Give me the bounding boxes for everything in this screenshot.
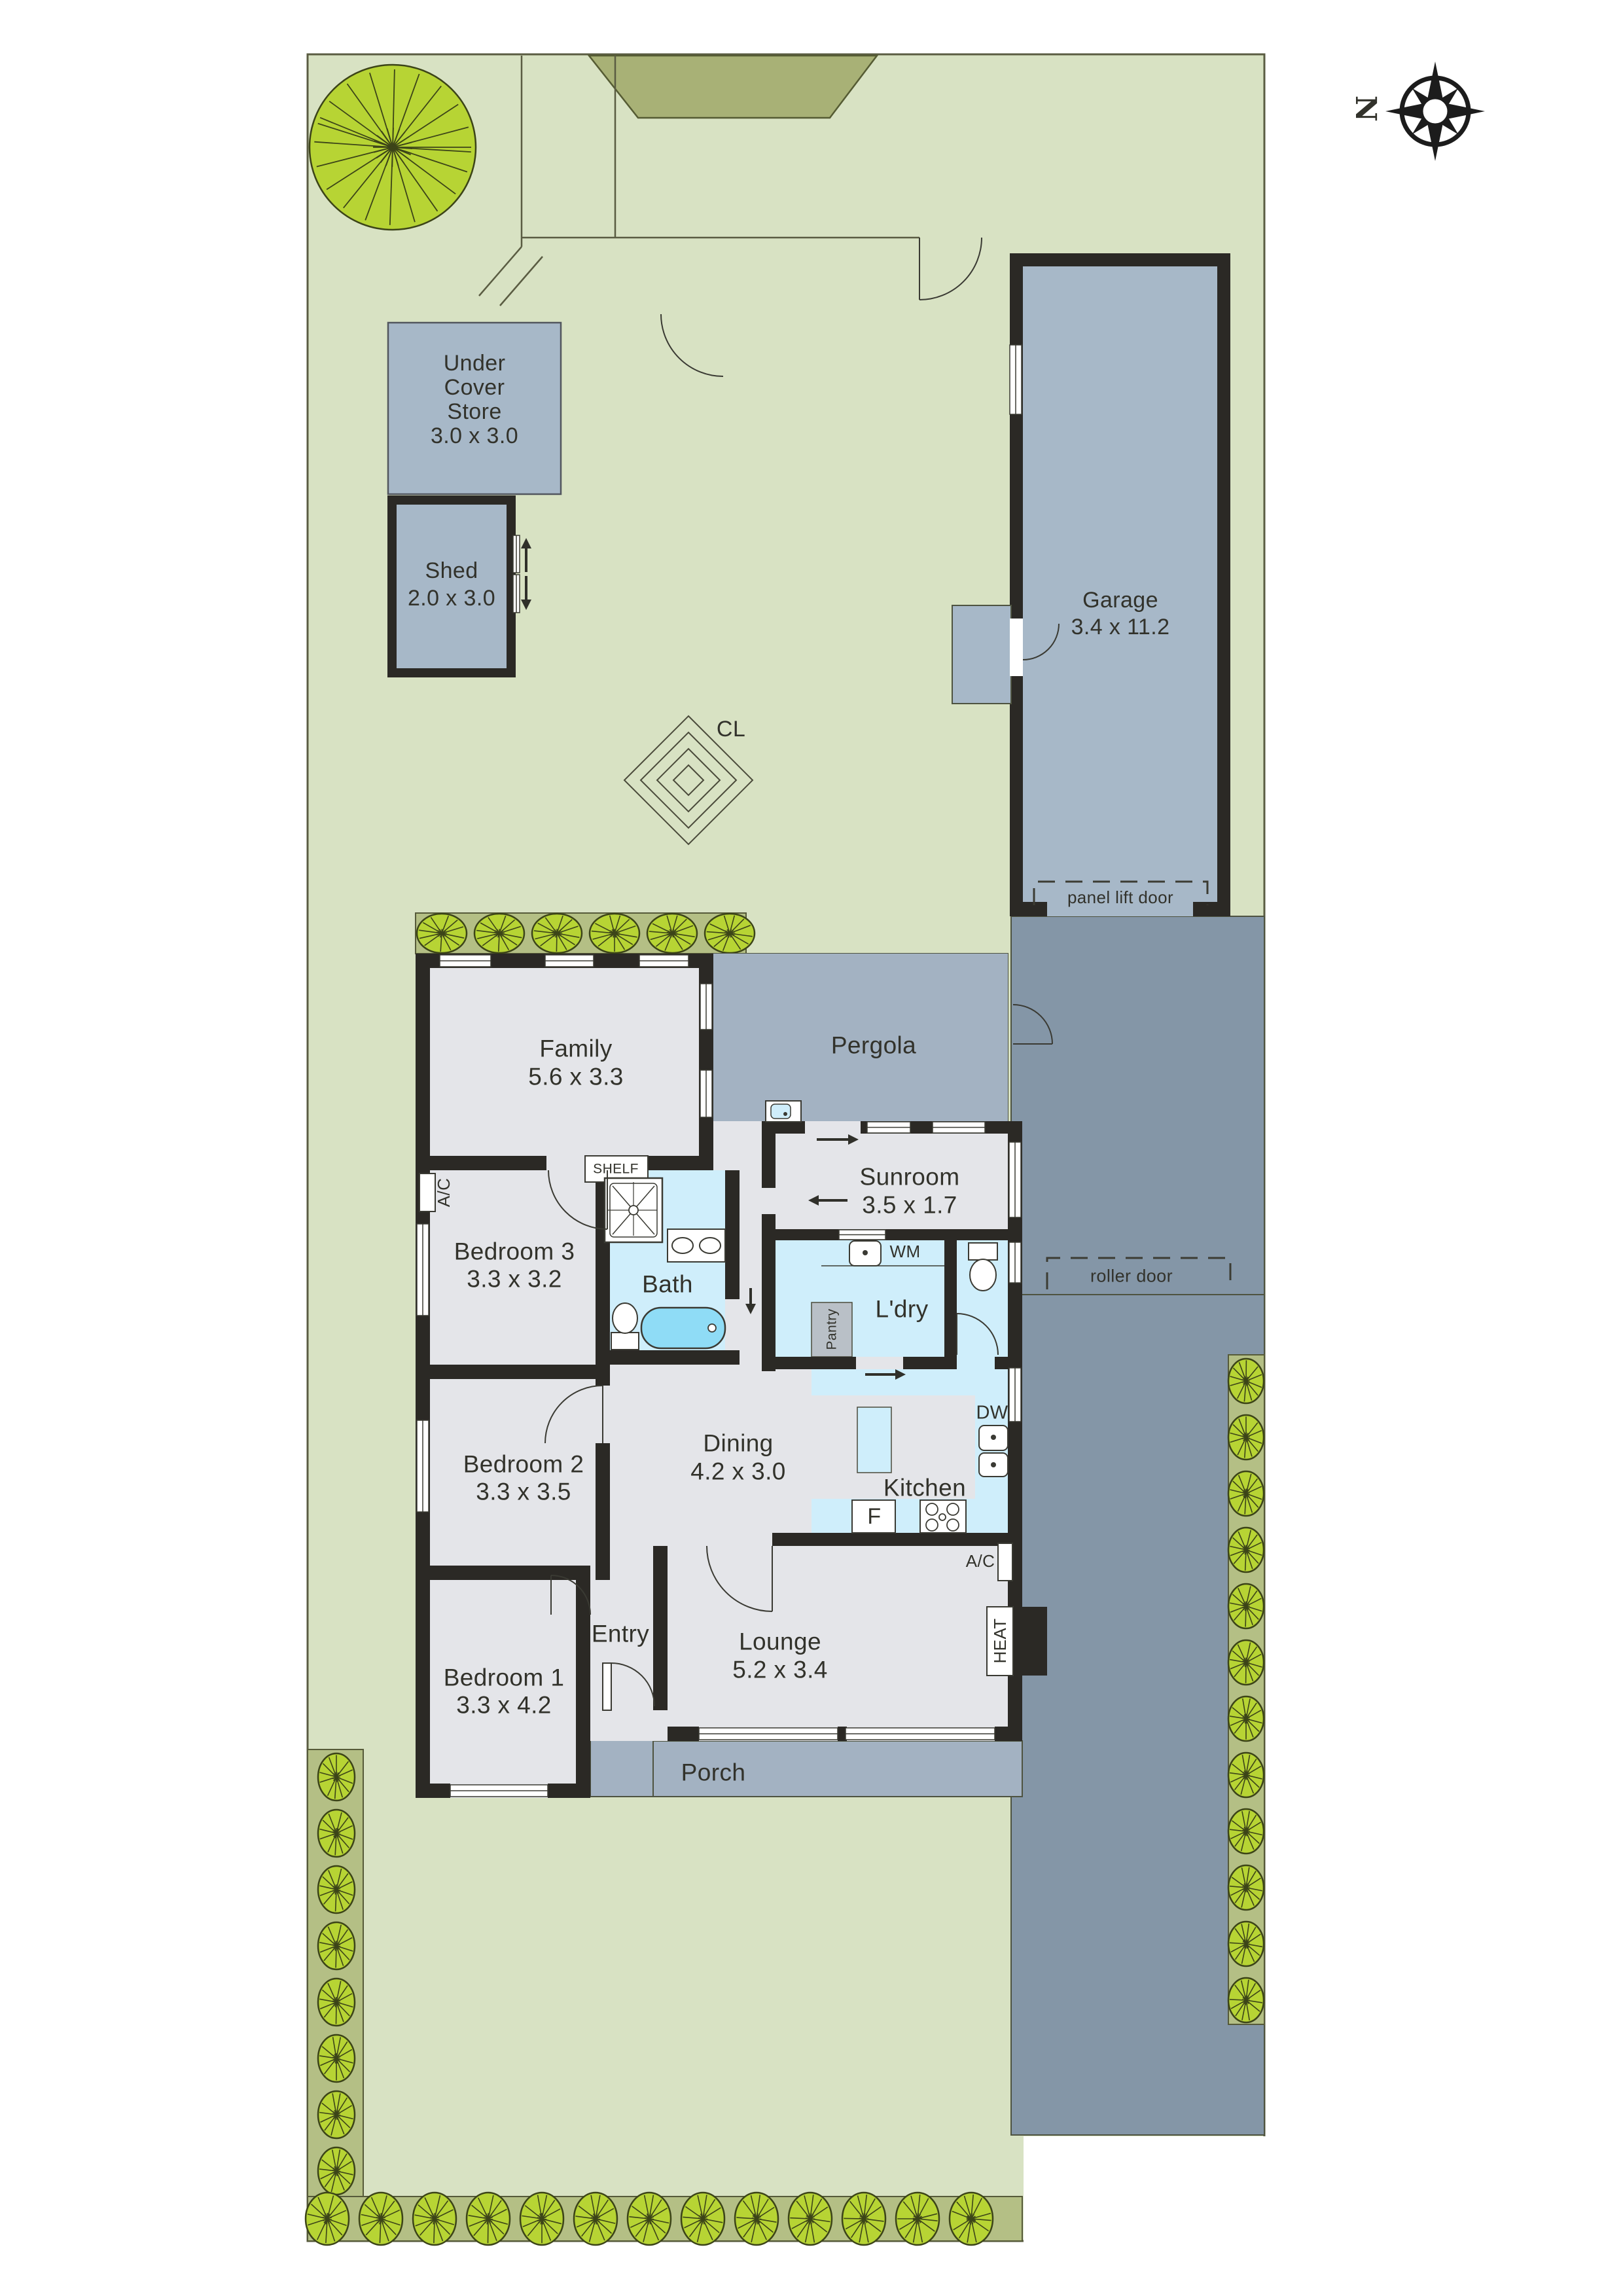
shrub-icon (1228, 1471, 1264, 1516)
shrub-icon (628, 2193, 671, 2245)
dining-dims: 4.2 x 3.0 (690, 1460, 786, 1484)
shrub-icon (647, 914, 697, 953)
shrub-icon (1228, 1809, 1264, 1854)
store-label-line1: Under (444, 352, 506, 374)
shrub-icon (1228, 1415, 1264, 1460)
shrub-icon (474, 914, 524, 953)
bath-name: Bath (642, 1272, 693, 1297)
heat-label: HEAT (991, 1618, 1008, 1663)
bedroom3-name: Bedroom 3 (454, 1240, 575, 1264)
garage-name: Garage (1082, 589, 1158, 611)
store-label-line3: Store (447, 401, 501, 423)
bedroom2-name: Bedroom 2 (463, 1452, 584, 1477)
clothesline-label: CL (717, 718, 745, 740)
laundry-name: L'dry (875, 1297, 928, 1321)
shelf-label: SHELF (593, 1162, 639, 1176)
shrub-icon (318, 1866, 355, 1913)
bedroom3-dims: 3.3 x 3.2 (467, 1267, 562, 1291)
lounge-name: Lounge (739, 1630, 821, 1654)
bedroom1-dims: 3.3 x 4.2 (456, 1693, 552, 1717)
garden-bed (589, 56, 877, 118)
shrub-icon (413, 2193, 456, 2245)
shrub-icon (789, 2193, 832, 2245)
shrub-icon (1228, 1584, 1264, 1628)
shrub-icon (950, 2193, 993, 2245)
compass-north-label: N (1351, 96, 1380, 122)
ac-bed3-label: A/C (435, 1178, 452, 1208)
store-label-line4: 3.0 x 3.0 (431, 425, 518, 447)
kitchen-name: Kitchen (883, 1476, 966, 1500)
tree-icon (310, 65, 476, 230)
shrub-icon (1228, 1359, 1264, 1403)
garage-dims: 3.4 x 11.2 (1071, 616, 1170, 638)
shrub-icon (318, 2091, 355, 2138)
shrub-icon (318, 1979, 355, 2026)
shrub-icon (705, 914, 755, 953)
entry-name: Entry (592, 1622, 649, 1646)
shrub-icon (318, 1753, 355, 1801)
bedroom1-name: Bedroom 1 (444, 1666, 565, 1690)
porch-name: Porch (681, 1761, 746, 1785)
fridge-label: F (867, 1505, 881, 1528)
wm-label: WM (890, 1243, 921, 1260)
shrub-icon (1228, 1753, 1264, 1797)
shrub-icon (1228, 1978, 1264, 2022)
sunroom-name: Sunroom (860, 1165, 960, 1189)
shrub-icon (532, 914, 582, 953)
shrub-icon (318, 2035, 355, 2082)
lounge-dims: 5.2 x 3.4 (732, 1658, 828, 1682)
bedroom2-dims: 3.3 x 3.5 (476, 1480, 571, 1504)
shrub-icon (574, 2193, 617, 2245)
shrub-icon (318, 1922, 355, 1969)
pantry-label: Pantry (825, 1308, 839, 1350)
shrub-icon (417, 914, 467, 953)
shrub-icon (842, 2193, 885, 2245)
family-name: Family (539, 1037, 612, 1061)
shrub-icon (318, 2147, 355, 2195)
shrub-icon (306, 2193, 349, 2245)
shrub-icon (590, 914, 639, 953)
compass-icon (1385, 62, 1485, 161)
ac-lounge-label: A/C (966, 1552, 995, 1570)
shrub-icon (735, 2193, 778, 2245)
pergola-name: Pergola (831, 1033, 916, 1058)
shrub-icon (318, 1810, 355, 1857)
shed-dims: 2.0 x 3.0 (408, 587, 495, 609)
shrub-icon (1228, 1528, 1264, 1572)
dining-name: Dining (703, 1431, 773, 1456)
shrub-icon (1228, 1922, 1264, 1966)
sunroom-dims: 3.5 x 1.7 (862, 1193, 957, 1217)
shrub-icon (520, 2193, 563, 2245)
shrub-icon (1228, 1640, 1264, 1685)
shrub-icon (1228, 1865, 1264, 1910)
shed-name: Shed (425, 560, 478, 582)
store-label-line2: Cover (444, 376, 505, 399)
shrub-icon (1228, 1696, 1264, 1741)
shrub-icon (896, 2193, 939, 2245)
floorplan-page: Under Cover Store 3.0 x 3.0 Shed 2.0 x 3… (0, 0, 1623, 2296)
family-dims: 5.6 x 3.3 (528, 1065, 624, 1089)
shrub-icon (681, 2193, 724, 2245)
shrub-icon (467, 2193, 510, 2245)
dw-label: DW (976, 1404, 1008, 1423)
roller-door-label: roller door (1090, 1268, 1173, 1285)
shrub-icon (359, 2193, 402, 2245)
panel-lift-door-label: panel lift door (1067, 889, 1173, 906)
floorplan-graphic (0, 0, 1623, 2296)
